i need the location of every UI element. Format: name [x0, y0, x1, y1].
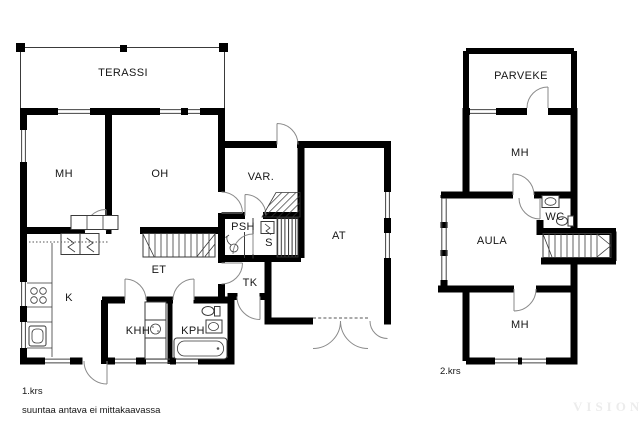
room-label-tk: TK [243, 277, 258, 289]
kitchen-sink-icon [29, 326, 46, 346]
room-label-et: ET [152, 264, 167, 276]
wc-sink-icon [542, 196, 559, 208]
room-label-mh-floor2-bottom: MH [511, 319, 529, 331]
room-label-k: K [65, 292, 73, 304]
staircase-et [143, 234, 215, 258]
floor1-caption: 1.krs [22, 386, 43, 397]
room-label-parveke: PARVEKE [494, 70, 548, 82]
fridge-units [61, 234, 99, 255]
kph-bathtub-icon [174, 338, 227, 359]
room-label-kph: KPH [181, 325, 205, 337]
disclaimer-text: suuntaa antava ei mittakaavassa [22, 405, 160, 416]
doors-floor1 [84, 124, 388, 385]
sauna-stove-icon [261, 222, 274, 235]
staircase-floor2 [543, 234, 611, 258]
room-label-oh: OH [151, 168, 168, 180]
staircase-hatch [262, 193, 300, 218]
room-label-terassi: TERASSI [98, 67, 148, 79]
sauna-bench-stripes [277, 218, 298, 257]
room-label-aula: AULA [477, 235, 507, 247]
room-label-var: VAR. [248, 171, 274, 183]
room-label-psh: PSH [231, 221, 255, 233]
room-label-wc: WC [545, 211, 564, 223]
floorplan-page: TERASSI MH OH VAR. PSH S AT ET TK K KHH … [0, 0, 640, 427]
room-label-at: AT [332, 230, 346, 242]
room-label-mh-floor1: MH [55, 168, 73, 180]
floorplan-svg [0, 0, 640, 427]
wardrobe-mh [71, 216, 118, 230]
room-label-s: S [265, 237, 273, 249]
vision-watermark: VISION [573, 399, 640, 415]
room-label-mh-floor2-top: MH [511, 147, 529, 159]
room-label-khh: KHH [126, 325, 150, 337]
kph-toilet-icon [202, 307, 220, 317]
kph-sink-icon [206, 320, 222, 333]
floor2-caption: 2.krs [440, 366, 461, 377]
kitchen-stove-icon [31, 288, 47, 304]
